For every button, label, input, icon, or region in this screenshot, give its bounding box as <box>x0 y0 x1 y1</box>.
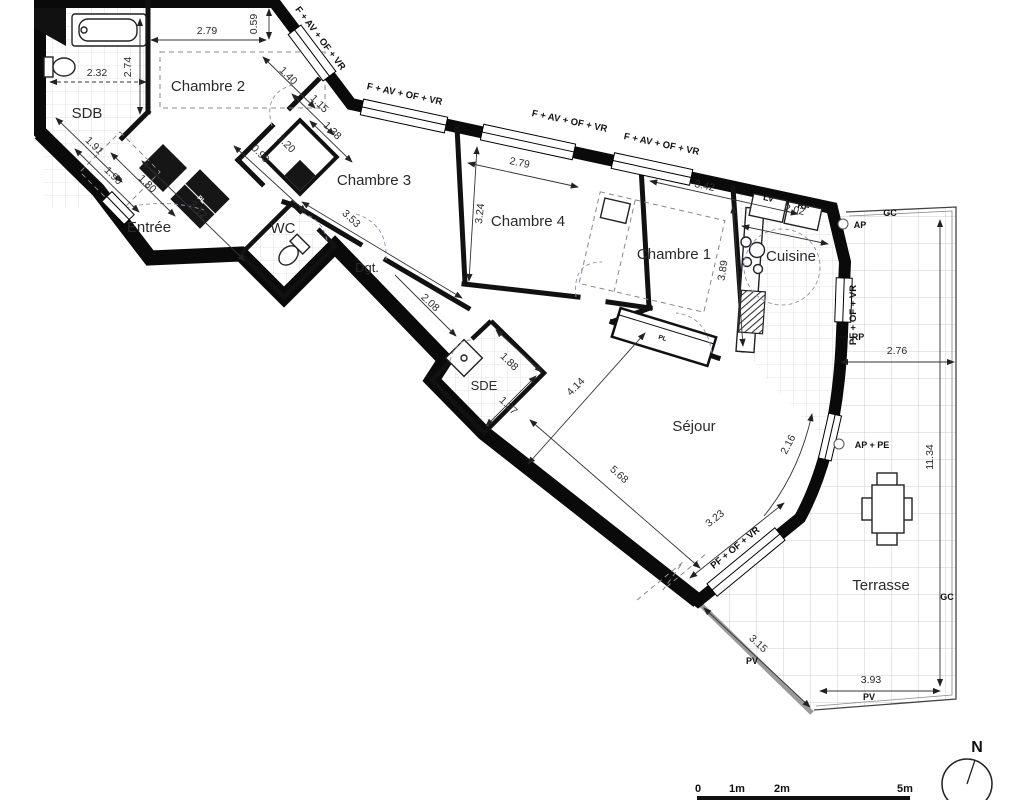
room-label-chambre1: Chambre 1 <box>637 246 711 263</box>
window-label: F + AV + OF + VR <box>531 108 609 135</box>
floor-plan-canvas: SDB Chambre 2 Entrée WC Chambre 3 Dgt. C… <box>0 0 1018 800</box>
room-label-wc: WC <box>271 220 296 237</box>
scale-label-1m: 1m <box>729 783 745 795</box>
window-label: F + AV + OF + VR <box>623 131 701 158</box>
dim-label: 0.59 <box>248 14 260 35</box>
dim-label: 2.76 <box>887 345 908 357</box>
tech-label-ap: AP <box>854 220 867 230</box>
scale-label-0: 0 <box>695 783 701 795</box>
tech-label-appe: AP + PE <box>855 440 890 450</box>
tech-label-gc: GC <box>940 592 954 602</box>
north-compass: N <box>942 739 992 800</box>
room-label-terrasse: Terrasse <box>852 577 910 594</box>
tech-label-gc: GC <box>883 208 897 218</box>
ap-marker <box>838 219 848 229</box>
ap-pe-marker <box>834 439 844 449</box>
scale-bar-rule <box>697 796 910 800</box>
appliance-hatch <box>739 290 766 334</box>
tech-label-pv: PV <box>863 692 875 702</box>
sink-icon <box>741 237 751 247</box>
room-label-chambre4: Chambre 4 <box>491 213 565 230</box>
scale-bar: 0 1m 2m 5m <box>695 783 913 800</box>
tech-label-rp: RP <box>852 332 865 342</box>
dim-label: 2.32 <box>87 67 108 79</box>
table-icon <box>872 485 904 533</box>
tech-label-pv: PV <box>746 656 758 666</box>
room-label-chambre3: Chambre 3 <box>337 172 411 189</box>
dim-label: 3.93 <box>861 674 882 686</box>
north-label: N <box>971 739 983 756</box>
dim-label: 2.79 <box>197 25 218 37</box>
dim-label: 2.74 <box>122 57 134 78</box>
apartment-floor <box>40 2 845 601</box>
room-label-sde: SDE <box>471 378 498 393</box>
compass-needle <box>967 760 975 784</box>
sdb-toilet-icon <box>44 57 75 77</box>
scale-label-2m: 2m <box>774 783 790 795</box>
floor-plan-page: SDB Chambre 2 Entrée WC Chambre 3 Dgt. C… <box>0 0 1018 800</box>
room-label-cuisine: Cuisine <box>766 248 816 265</box>
dim-label: 3.24 <box>473 203 487 225</box>
scale-label-5m: 5m <box>897 783 913 795</box>
bathtub-icon <box>72 14 146 46</box>
compass-circle <box>942 759 992 800</box>
hob-icon <box>754 265 763 274</box>
chair-icon <box>877 532 897 545</box>
chair-icon <box>877 473 897 486</box>
room-label-sdb: SDB <box>72 105 103 122</box>
room-label-chambre2: Chambre 2 <box>171 78 245 95</box>
room-label-entree: Entrée <box>127 219 171 236</box>
dim-label: 11.34 <box>924 444 936 470</box>
room-label-dgt: Dgt. <box>355 260 379 275</box>
room-label-sejour: Séjour <box>672 418 715 435</box>
